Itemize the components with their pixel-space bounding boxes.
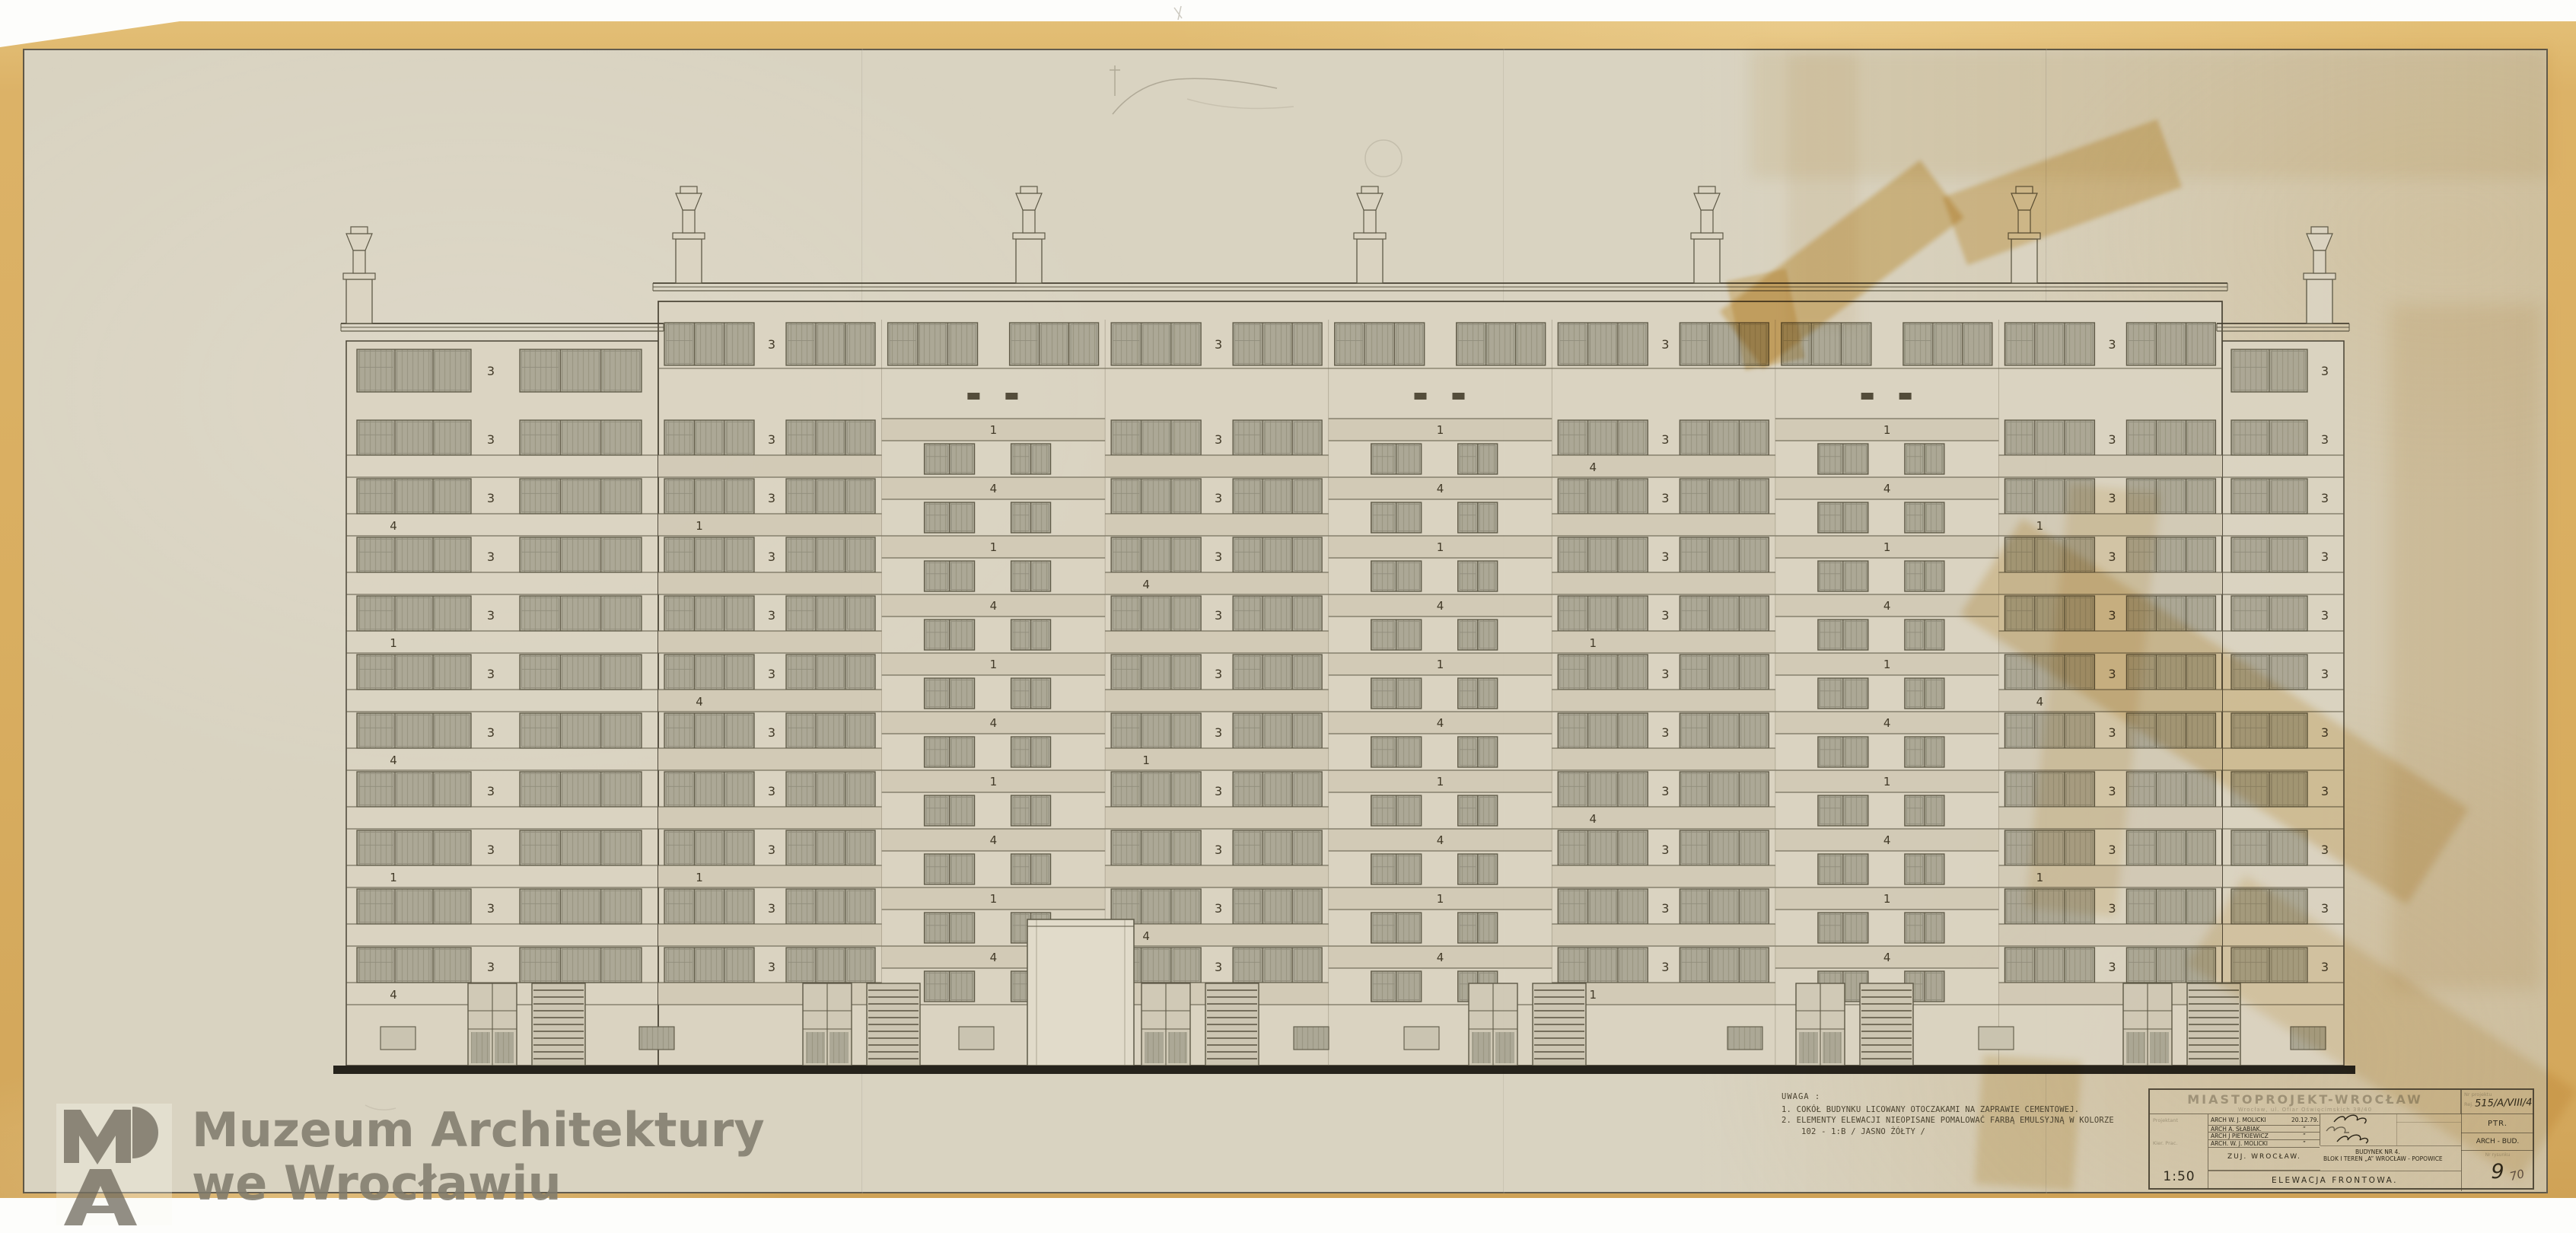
title-block: MIASTOPROJEKT-WROCŁAW Wrocław, ul. Ofiar… bbox=[2148, 1088, 2534, 1190]
notes-heading: UWAGA : bbox=[1782, 1091, 2147, 1103]
scale-value: 1:50 bbox=[2150, 1164, 2208, 1190]
note-line: 2. ELEMENTY ELEWACJI NIEOPISANE POMALOWA… bbox=[1782, 1115, 2147, 1126]
note-line: 102 - 1:B / JASNO ŻÓŁTY / bbox=[1782, 1126, 2147, 1138]
signatures-cell bbox=[2320, 1114, 2396, 1145]
team-row: ARCH J PIETKIEWICZ ” bbox=[2208, 1133, 2320, 1140]
row-divider bbox=[2320, 1145, 2461, 1146]
paper-crease bbox=[861, 49, 863, 1193]
watermark-line2: we Wrocławiu bbox=[192, 1155, 562, 1211]
design-team-list: ARCH W. J. MOLICKI 20.12.79. ARCH A. SŁA… bbox=[2208, 1114, 2320, 1145]
signature-date: ” bbox=[2291, 1126, 2317, 1133]
architect-name: ARCH J PIETKIEWICZ bbox=[2211, 1133, 2269, 1139]
drawing-title: ELEWACJA FRONTOWA. bbox=[2208, 1171, 2461, 1190]
rej-label: Rej. bbox=[2464, 1101, 2473, 1107]
office-name: MIASTOPROJEKT-WROCŁAW bbox=[2150, 1090, 2460, 1107]
office-address: Wrocław, ul. Ofiar Oświęcimskich 38/40 bbox=[2150, 1107, 2460, 1113]
client-cell: ZUJ. WROCŁAW. bbox=[2208, 1145, 2320, 1171]
office-header: MIASTOPROJEKT-WROCŁAW Wrocław, ul. Ofiar… bbox=[2150, 1090, 2461, 1114]
signature-date: 20.12.79. bbox=[2291, 1117, 2317, 1123]
projektant-label: Projektant bbox=[2153, 1117, 2178, 1123]
kier-prac-label: Kier. Prac. bbox=[2153, 1140, 2177, 1146]
role-label-column: Projektant Kier. Prac. 1:50 bbox=[2150, 1114, 2208, 1190]
team-row: ARCH A. SŁABIAK. ” bbox=[2208, 1126, 2320, 1133]
museum-watermark: Muzeum Architektury we Wrocławiu bbox=[56, 1104, 817, 1233]
project-number-cell: Nr projektu Rej. 515/A/VIII/4 bbox=[2461, 1090, 2534, 1114]
architect-name: ARCH W. J. MOLICKI bbox=[2211, 1117, 2266, 1123]
object-line2: BLOK I TEREN „A” WROCŁAW - POPOWICE bbox=[2323, 1155, 2461, 1162]
project-number-label: Nr projektu bbox=[2464, 1091, 2492, 1098]
paper-crease bbox=[1503, 49, 1505, 1193]
branch-cell: PTR. bbox=[2461, 1114, 2534, 1133]
signature-scribbles bbox=[2320, 1114, 2396, 1145]
discipline-cell: ARCH - BUD. bbox=[2461, 1133, 2534, 1151]
note-line: 1. COKÓŁ BUDYNKU LICOWANY OTOCZAKAMI NA … bbox=[1782, 1104, 2147, 1116]
architect-name: ARCH A. SŁABIAK. bbox=[2211, 1126, 2262, 1133]
scanned-archival-drawing: 3333333131341333314343431343313413133334… bbox=[0, 0, 2576, 1233]
sheet-number-label: Nr rysunku bbox=[2461, 1151, 2534, 1158]
paper-crease bbox=[2046, 49, 2047, 1193]
object-line1: BUDYNEK NR 4. bbox=[2323, 1149, 2461, 1155]
drawing-sheet bbox=[23, 49, 2548, 1193]
stamp-columns bbox=[2396, 1114, 2461, 1145]
team-row: ARCH W. J. MOLICKI 20.12.79. bbox=[2208, 1114, 2320, 1126]
board-corner-wedge bbox=[0, 20, 190, 47]
object-title-cell: BUDYNEK NR 4. BLOK I TEREN „A” WROCŁAW -… bbox=[2323, 1145, 2461, 1171]
ma-monogram-logo bbox=[56, 1104, 178, 1231]
column-divider bbox=[2461, 1090, 2462, 1191]
project-number-value: 515/A/VIII/4 bbox=[2475, 1097, 2533, 1109]
signature-date: ” bbox=[2291, 1133, 2317, 1139]
watermark-line1: Muzeum Architektury bbox=[192, 1102, 765, 1158]
notes-block: UWAGA : 1. COKÓŁ BUDYNKU LICOWANY OTOCZA… bbox=[1782, 1091, 2147, 1137]
